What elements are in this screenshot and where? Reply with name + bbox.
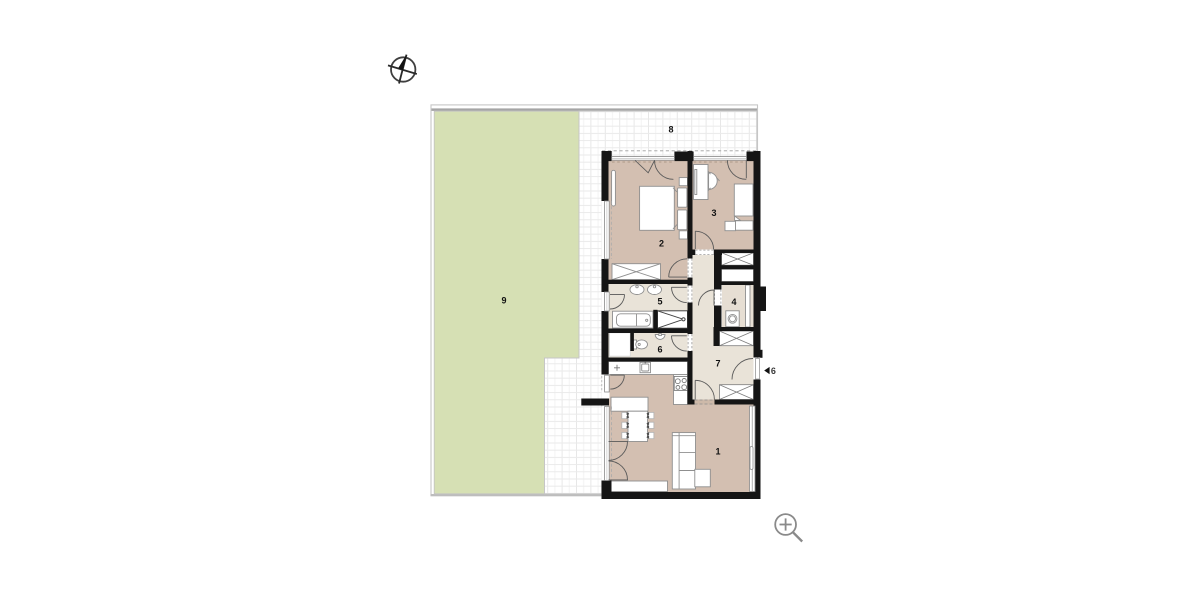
svg-text:7: 7 — [715, 359, 720, 369]
svg-text:6: 6 — [771, 366, 776, 376]
svg-text:8: 8 — [668, 125, 673, 135]
svg-text:3: 3 — [711, 208, 716, 218]
svg-text:2: 2 — [659, 239, 664, 249]
svg-text:4: 4 — [731, 297, 736, 307]
svg-text:5: 5 — [657, 297, 662, 307]
svg-text:6: 6 — [657, 345, 662, 355]
svg-text:9: 9 — [501, 296, 506, 306]
svg-text:1: 1 — [715, 447, 720, 457]
